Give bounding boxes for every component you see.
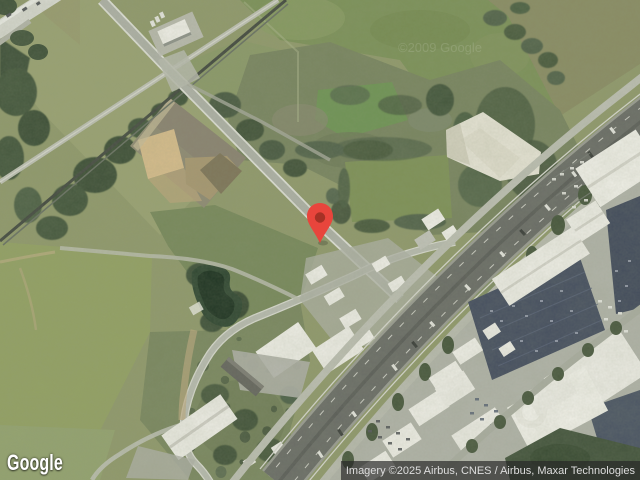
svg-text:©2009 Google: ©2009 Google (398, 40, 482, 55)
